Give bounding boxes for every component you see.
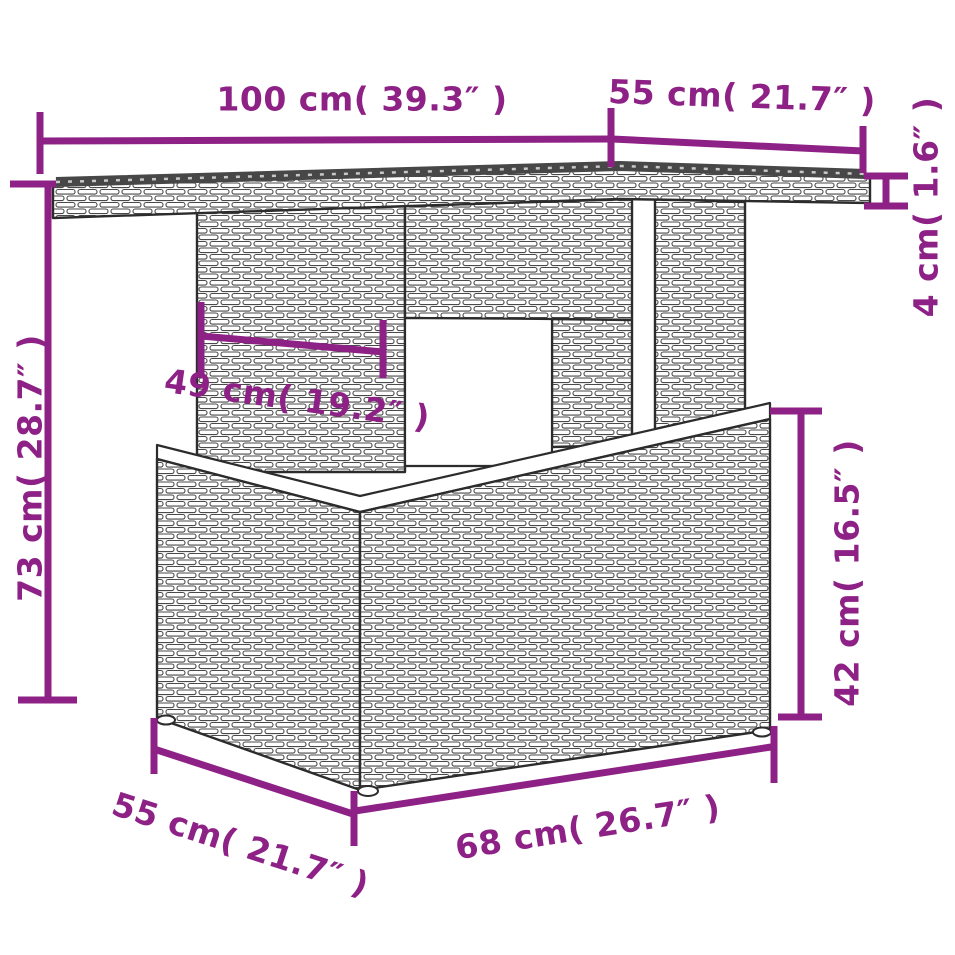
pedestal-right-strip [552, 319, 632, 447]
base-front-face [360, 419, 770, 790]
pedestal-upper-band [405, 199, 632, 320]
diagram-canvas: 100 cm( 39.3″ ) 55 cm( 21.7″ ) 4 cm( 1.6… [0, 0, 955, 955]
dimension-line [40, 139, 612, 141]
dim-label-top-depth: 55 cm( 21.7″ ) [608, 72, 877, 120]
foot-right [753, 728, 771, 737]
dim-label-overall-height: 73 cm( 28.7″ ) [11, 334, 50, 602]
base-left-face [157, 459, 360, 790]
dimension-line [612, 139, 863, 151]
dim-label-base-length: 68 cm( 26.7″ ) [452, 787, 722, 867]
dim-top-thickness: 4 cm( 1.6″ ) [864, 97, 946, 318]
dimension-diagram: 100 cm( 39.3″ ) 55 cm( 21.7″ ) 4 cm( 1.6… [0, 0, 955, 955]
dim-overall-height: 73 cm( 28.7″ ) [10, 184, 77, 700]
pedestal-right-column [655, 199, 745, 429]
dim-label-top-thickness: 4 cm( 1.6″ ) [907, 97, 946, 318]
dim-label-base-depth: 55 cm( 21.7″ ) [107, 784, 374, 904]
foot-front [358, 786, 378, 796]
dim-base-height: 42 cm( 16.5″ ) [770, 411, 867, 717]
dim-label-top-length: 100 cm( 39.3″ ) [216, 80, 507, 119]
dim-top-depth: 55 cm( 21.7″ ) [608, 72, 877, 173]
dim-top-length: 100 cm( 39.3″ ) [40, 80, 612, 175]
table-illustration [53, 166, 870, 796]
dim-label-base-height: 42 cm( 16.5″ ) [828, 439, 867, 707]
pedestal-window [405, 318, 552, 466]
foot-left [157, 716, 175, 725]
